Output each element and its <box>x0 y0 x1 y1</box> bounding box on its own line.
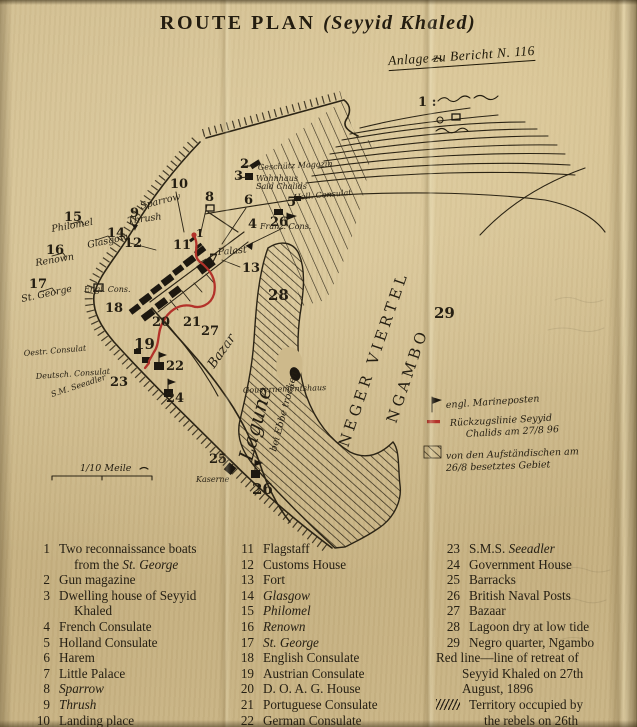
legend-item: 19Austrian Consulate <box>230 666 430 682</box>
legend-item-number: 17 <box>230 635 254 651</box>
legend-text: Harem <box>59 650 95 665</box>
map-label: Renown <box>34 251 75 269</box>
legend-text: Lagoon dry at low tide <box>469 619 589 634</box>
legend-text: Red line—line of retreat of <box>436 650 579 665</box>
legend-item-text: St. George <box>263 635 430 651</box>
legend-item-text: D. O. A. G. House <box>263 681 430 697</box>
legend-text: English Consulate <box>263 650 359 665</box>
legend-text: D. O. A. G. House <box>263 681 360 696</box>
legend-item: 3Dwelling house of SeyyidKhaled <box>26 588 226 619</box>
legend-item-number: 4 <box>26 619 50 635</box>
illegible-handwriting <box>432 58 498 133</box>
legend-item-text: Red line—line of retreat ofSeyyid Khaled… <box>436 650 632 697</box>
legend-text: Two reconnaissance boats <box>59 541 197 556</box>
legend-item-text: Lagoon dry at low tide <box>469 619 632 635</box>
legend-text: August, 1896 <box>462 681 533 696</box>
legend-item: 13Fort <box>230 572 430 588</box>
legend-item-number: 15 <box>230 603 254 619</box>
legend-item: 2Gun magazine <box>26 572 226 588</box>
legend-item: Red line—line of retreat ofSeyyid Khaled… <box>436 650 632 697</box>
map-label: Oestr. Consulat <box>23 344 87 358</box>
legend-column-3: 23S.M.S. Seeadler24Government House25Bar… <box>436 541 632 727</box>
legend-item-number: 29 <box>436 635 460 651</box>
map-label: 3 <box>234 169 243 184</box>
legend-item-text: Customs House <box>263 557 430 573</box>
legend-text: Thrush <box>59 697 96 712</box>
map-label: 18 <box>105 301 123 316</box>
legend-item: 27Bazaar <box>436 603 632 619</box>
legend-text: Renown <box>263 619 306 634</box>
legend-item-text: Renown <box>263 619 430 635</box>
legend-item-number: 27 <box>436 603 460 619</box>
legend-item: 1Two reconnaissance boatsfrom the St. Ge… <box>26 541 226 572</box>
legend-text: Holland Consulate <box>59 635 158 650</box>
legend-item: 6Harem <box>26 650 226 666</box>
map-label: 6 <box>244 193 253 208</box>
map-label: 20 <box>152 315 170 330</box>
legend-text: Seyyid Khaled on 27th <box>462 666 583 681</box>
map-label: 11 <box>173 238 191 253</box>
legend-item-text: Portuguese Consulate <box>263 697 430 713</box>
map-label: Franz. Cons. <box>259 222 311 231</box>
legend-item: 22German Consulate <box>230 713 430 727</box>
legend-item-number: 16 <box>230 619 254 635</box>
legend-item: 24Government House <box>436 557 632 573</box>
map-label: von den Aufständischen am <box>446 446 579 462</box>
map-label: 22 <box>166 359 184 374</box>
legend-text: Barracks <box>469 572 516 587</box>
map-label: 1 <box>196 227 204 240</box>
legend-item-number: 1 <box>26 541 50 557</box>
map-label: Said Chalids <box>256 182 307 191</box>
legend-item-text: Holland Consulate <box>59 635 226 651</box>
legend-item-text: Bazaar <box>469 603 632 619</box>
legend-item: 5Holland Consulate <box>26 635 226 651</box>
legend-item: 18English Consulate <box>230 650 430 666</box>
map-label: 28 <box>268 286 289 304</box>
legend-item-number: 20 <box>230 681 254 697</box>
legend-item: 4French Consulate <box>26 619 226 635</box>
map-label: Sparrow <box>139 191 182 212</box>
legend-item-number: 19 <box>230 666 254 682</box>
legend-item-number: 28 <box>436 619 460 635</box>
legend-item: 20D. O. A. G. House <box>230 681 430 697</box>
legend-item-text: Territory occupied bythe rebels on 26thA… <box>469 697 632 727</box>
legend-text: German Consulate <box>263 713 362 727</box>
legend-item-number: 25 <box>436 572 460 588</box>
map-label: 26 <box>252 480 273 498</box>
map-label: 23 <box>110 375 128 390</box>
legend-item: 10Landing place <box>26 713 226 727</box>
legend-item: 25Barracks <box>436 572 632 588</box>
legend-item: 14Glasgow <box>230 588 430 604</box>
legend-item-text: Flagstaff <box>263 541 430 557</box>
legend-text: Fort <box>263 572 285 587</box>
legend-text: British Naval Posts <box>469 588 571 603</box>
legend-item-text: Sparrow <box>59 681 226 697</box>
map-label: 4 <box>248 217 257 232</box>
map-label: Palast <box>216 244 247 258</box>
legend-item: 11Flagstaff <box>230 541 430 557</box>
legend-item-text: Government House <box>469 557 632 573</box>
legend-column-2: 11Flagstaff12Customs House13Fort14Glasgo… <box>230 541 430 727</box>
legend-item-number: 22 <box>230 713 254 727</box>
legend-item-number: 5 <box>26 635 50 651</box>
legend-text: Customs House <box>263 557 346 572</box>
map-label: 7 <box>209 252 218 267</box>
legend-text: Government House <box>469 557 572 572</box>
legend-item-number: 18 <box>230 650 254 666</box>
legend-item: 17St. George <box>230 635 430 651</box>
legend-item-number: 11 <box>230 541 254 557</box>
legend-text: Negro quarter, Ngambo <box>469 635 594 650</box>
legend-item-number: 10 <box>26 713 50 727</box>
legend-text: Territory occupied by <box>469 697 583 712</box>
legend-item: 12Customs House <box>230 557 430 573</box>
legend-text: French Consulate <box>59 619 152 634</box>
legend-item: 8Sparrow <box>26 681 226 697</box>
legend-item-number: 24 <box>436 557 460 573</box>
legend-item-text: Dwelling house of SeyyidKhaled <box>59 588 226 619</box>
legend-item-number: 9 <box>26 697 50 713</box>
legend-text: Glasgow <box>263 588 310 603</box>
legend-item-text: Glasgow <box>263 588 430 604</box>
map-label: Philomel <box>50 217 94 235</box>
legend-item-text: Negro quarter, Ngambo <box>469 635 632 651</box>
legend-item: 9Thrush <box>26 697 226 713</box>
legend-item-text: Two reconnaissance boatsfrom the St. Geo… <box>59 541 226 572</box>
legend-item-number: 13 <box>230 572 254 588</box>
legend-item-number: 7 <box>26 666 50 682</box>
legend-item-text: Fort <box>263 572 430 588</box>
legend-item-text: French Consulate <box>59 619 226 635</box>
map-label: 10 <box>170 177 188 192</box>
map-label: Kaserne <box>195 475 230 484</box>
legend-item-number: 21 <box>230 697 254 713</box>
legend-item-number: 2 <box>26 572 50 588</box>
map-label: 29 <box>434 304 455 322</box>
map-label: 1 : <box>418 95 436 110</box>
legend-item: 29Negro quarter, Ngambo <box>436 635 632 651</box>
legend-item-text: Thrush <box>59 697 226 713</box>
legend-text: Landing place <box>59 713 134 727</box>
legend-text: Little Palace <box>59 666 125 681</box>
legend-item-number: 6 <box>26 650 50 666</box>
legend-text: Portuguese Consulate <box>263 697 378 712</box>
map-label: NGAMBO <box>383 326 432 425</box>
legend-text: Dwelling house of Seyyid <box>59 588 196 603</box>
legend-item: 23S.M.S. Seeadler <box>436 541 632 557</box>
legend-item-number: 14 <box>230 588 254 604</box>
map-label: 13 <box>242 261 260 276</box>
legend-hatch-sample <box>424 446 441 458</box>
legend-item: 7Little Palace <box>26 666 226 682</box>
legend-text: Sparrow <box>59 681 104 696</box>
legend-text: Philomel <box>263 603 311 618</box>
legend-text: the rebels on 26th <box>484 713 578 727</box>
legend-text: S.M.S. <box>469 541 509 556</box>
legend-item-text: German Consulate <box>263 713 430 727</box>
legend-item-text: Philomel <box>263 603 430 619</box>
legend-item-text: Gun magazine <box>59 572 226 588</box>
legend-item: Territory occupied bythe rebels on 26thA… <box>436 697 632 727</box>
legend-item: 21Portuguese Consulate <box>230 697 430 713</box>
legend-item-text: British Naval Posts <box>469 588 632 604</box>
legend-item-text: Landing place <box>59 713 226 727</box>
legend-item-number: 12 <box>230 557 254 573</box>
map-label: engl. Marineposten <box>445 393 539 411</box>
legend-text: Bazaar <box>469 603 506 618</box>
legend-item-text: S.M.S. Seeadler <box>469 541 632 557</box>
map-label: 1/10 Meile <box>80 463 132 474</box>
hatch-sample-icon <box>436 699 460 710</box>
legend-item-number: 26 <box>436 588 460 604</box>
legend-item-text: Little Palace <box>59 666 226 682</box>
map-label: 26/8 besetztes Gebiet <box>445 459 551 474</box>
legend-column-1: 1Two reconnaissance boatsfrom the St. Ge… <box>26 541 226 727</box>
map-label: 8 <box>205 190 214 205</box>
map-label: 27 <box>201 324 219 339</box>
legend-item-number: 23 <box>436 541 460 557</box>
legend-text: from the <box>74 557 122 572</box>
legend-item: 26British Naval Posts <box>436 588 632 604</box>
map-label: 21 <box>183 315 201 330</box>
legend-item-text: English Consulate <box>263 650 430 666</box>
map-label: Engl. Cons. <box>83 285 131 294</box>
legend-text: Flagstaff <box>263 541 310 556</box>
map-label: 24 <box>166 391 184 406</box>
legend-item-number: 8 <box>26 681 50 697</box>
legend-text: St. George <box>122 557 178 572</box>
legend-text: Gun magazine <box>59 572 136 587</box>
scanned-page: ROUTE PLAN (Seyyid Khaled) Anlage zu Ber… <box>0 0 637 727</box>
legend-item-text: Harem <box>59 650 226 666</box>
legend-text: Seeadler <box>509 541 555 556</box>
legend-item: 15Philomel <box>230 603 430 619</box>
legend-item-number: 3 <box>26 588 50 604</box>
legend-text: Khaled <box>74 603 112 618</box>
legend-item: 16Renown <box>230 619 430 635</box>
legend-text: St. George <box>263 635 319 650</box>
legend-text: Austrian Consulate <box>263 666 364 681</box>
map-label: 19 <box>134 335 155 353</box>
legend-item-text: Austrian Consulate <box>263 666 430 682</box>
legend-item-text: Barracks <box>469 572 632 588</box>
legend-item: 28Lagoon dry at low tide <box>436 619 632 635</box>
map-label: 25 <box>209 452 227 467</box>
